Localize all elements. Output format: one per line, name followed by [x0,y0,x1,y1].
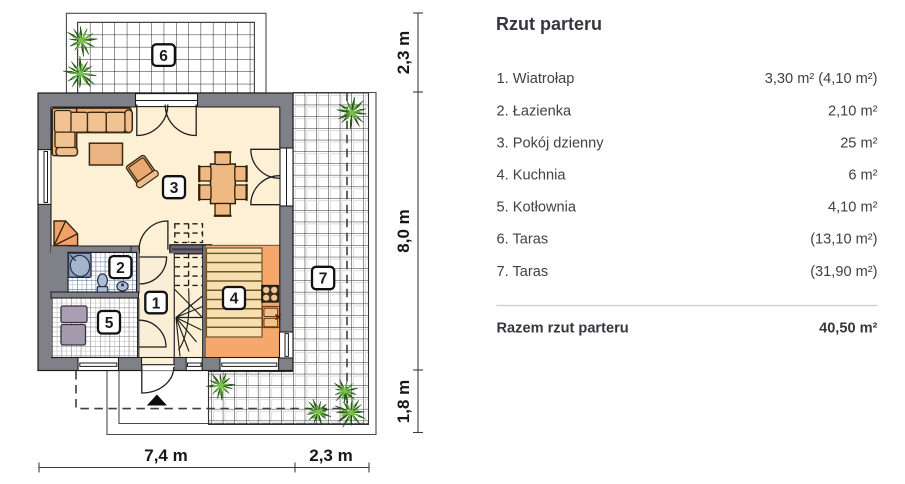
svg-text:7,4 m: 7,4 m [144,446,187,465]
svg-text:1. Wiatrołap: 1. Wiatrołap [497,71,575,87]
svg-text:3,30 m² (4,10 m²): 3,30 m² (4,10 m²) [765,71,878,87]
svg-text:8,0 m: 8,0 m [394,209,413,252]
svg-text:1: 1 [152,295,161,312]
svg-text:25 m²: 25 m² [840,135,877,151]
svg-text:Rzut parteru: Rzut parteru [496,14,602,34]
svg-text:7. Taras: 7. Taras [497,264,549,280]
svg-text:Razem rzut parteru: Razem rzut parteru [497,321,629,337]
svg-text:3. Pokój dzienny: 3. Pokój dzienny [497,135,605,151]
svg-text:4: 4 [230,291,239,308]
svg-text:40,50 m²: 40,50 m² [819,321,878,337]
svg-text:2: 2 [116,260,125,277]
svg-text:3: 3 [170,180,179,197]
svg-text:4. Kuchnia: 4. Kuchnia [497,168,567,184]
svg-text:4,10 m²: 4,10 m² [828,200,878,216]
svg-text:6. Taras: 6. Taras [497,232,549,248]
svg-text:2,3 m: 2,3 m [394,31,413,74]
svg-text:2,10 m²: 2,10 m² [828,103,878,119]
svg-text:5: 5 [105,315,114,332]
svg-text:2. Łazienka: 2. Łazienka [497,103,573,119]
svg-text:1,8 m: 1,8 m [394,380,413,423]
svg-text:2,3 m: 2,3 m [309,446,352,465]
svg-text:6: 6 [159,48,168,65]
svg-text:5. Kotłownia: 5. Kotłownia [497,200,577,216]
svg-text:(13,10 m²): (13,10 m²) [810,232,877,248]
svg-text:6 m²: 6 m² [848,168,877,184]
svg-text:7: 7 [319,271,328,288]
svg-text:(31,90 m²): (31,90 m²) [810,264,877,280]
